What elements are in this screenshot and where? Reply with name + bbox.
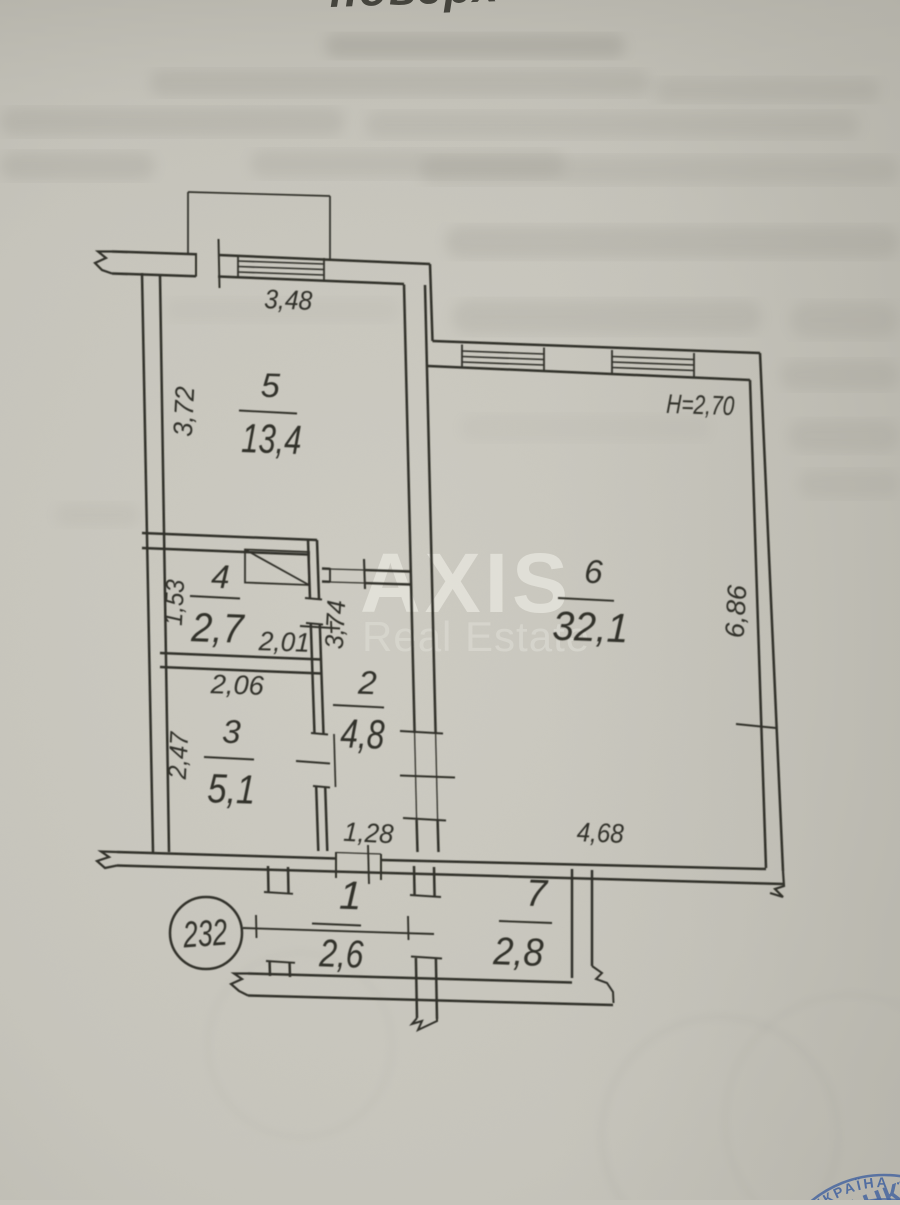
svg-text:3,48: 3,48 [264,284,313,316]
svg-text:232: 232 [181,912,229,956]
svg-text:H=2,70: H=2,70 [666,389,735,421]
svg-text:2,01: 2,01 [257,626,310,658]
svg-text:4,8: 4,8 [340,710,386,758]
svg-text:2,7: 2,7 [190,604,246,652]
svg-text:4,68: 4,68 [576,817,624,849]
svg-text:2,6: 2,6 [318,932,365,977]
svg-text:5: 5 [260,367,280,406]
svg-text:1: 1 [339,874,363,919]
svg-text:3,72: 3,72 [168,386,201,438]
svg-text:1,28: 1,28 [343,817,395,850]
svg-text:3,74: 3,74 [319,599,352,650]
svg-text:2: 2 [357,664,378,702]
svg-text:6: 6 [584,553,604,591]
svg-text:2,47: 2,47 [162,730,195,781]
svg-text:4: 4 [211,558,231,596]
svg-text:6,86: 6,86 [720,583,753,638]
svg-text:1,53: 1,53 [158,578,190,626]
svg-text:2,06: 2,06 [209,669,265,701]
svg-text:7: 7 [525,873,549,916]
svg-text:5,1: 5,1 [207,765,257,813]
svg-text:13,4: 13,4 [241,415,303,463]
svg-text:32,1: 32,1 [552,603,630,652]
svg-text:2,8: 2,8 [492,930,545,975]
svg-text:3: 3 [222,713,242,751]
